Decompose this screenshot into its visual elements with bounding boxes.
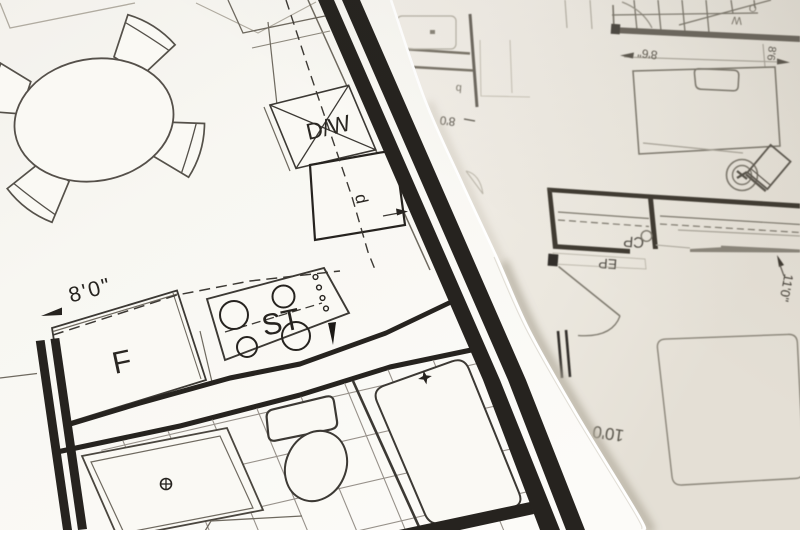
svg-text:O: O	[748, 2, 757, 14]
svg-text:8'6": 8'6"	[637, 46, 658, 62]
svg-text:W: W	[731, 14, 743, 27]
svg-text:EP: EP	[598, 255, 618, 272]
svg-text:b: b	[455, 82, 462, 94]
svg-text:8'6: 8'6	[764, 46, 778, 62]
